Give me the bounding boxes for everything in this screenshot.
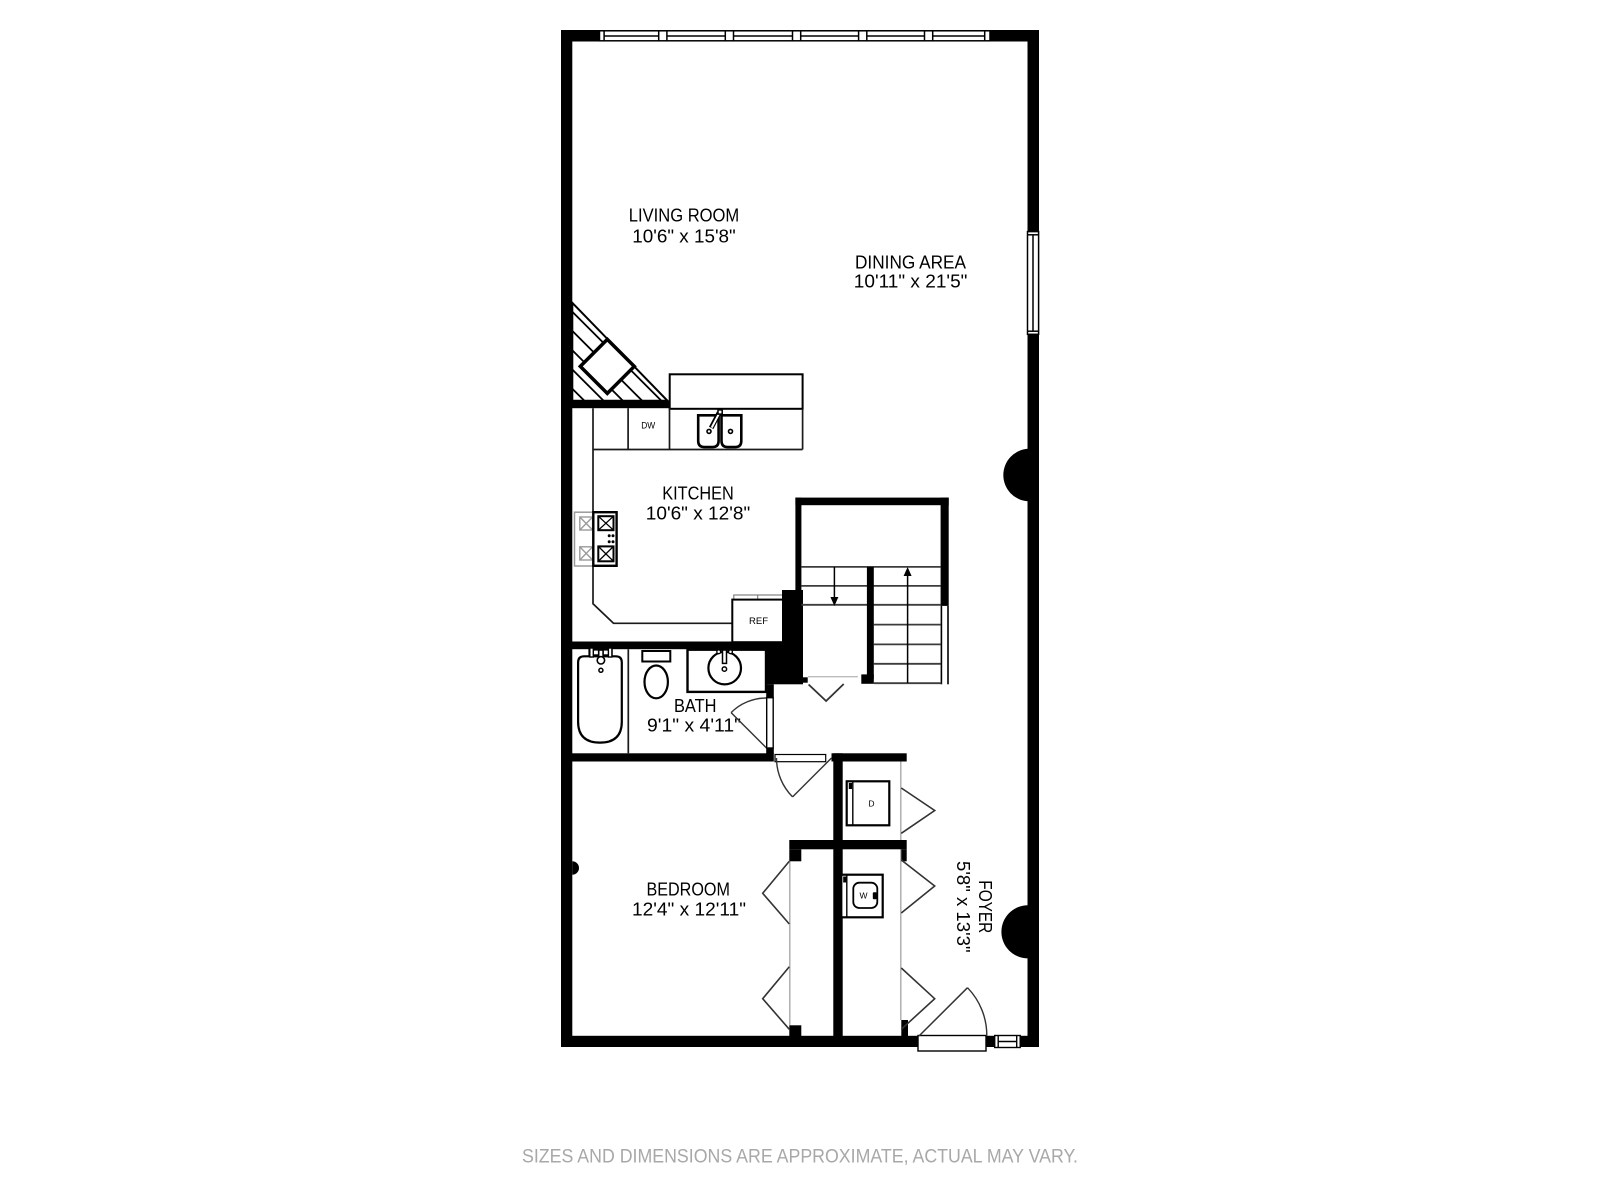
svg-text:SIZES AND DIMENSIONS ARE APPRO: SIZES AND DIMENSIONS ARE APPROXIMATE, AC… bbox=[522, 1147, 1078, 1168]
svg-text:12'4" x 12'11": 12'4" x 12'11" bbox=[632, 898, 746, 919]
svg-text:D: D bbox=[868, 798, 874, 808]
svg-text:10'11" x 21'5": 10'11" x 21'5" bbox=[854, 270, 968, 291]
svg-text:DW: DW bbox=[641, 421, 655, 432]
svg-text:10'6" x 15'8": 10'6" x 15'8" bbox=[632, 225, 736, 246]
svg-text:BATH: BATH bbox=[674, 695, 717, 716]
svg-text:KITCHEN: KITCHEN bbox=[662, 483, 734, 504]
svg-text:5'8" x 13'3": 5'8" x 13'3" bbox=[953, 861, 974, 953]
svg-text:BEDROOM: BEDROOM bbox=[646, 879, 730, 900]
svg-text:9'1" x 4'11": 9'1" x 4'11" bbox=[647, 715, 741, 736]
svg-text:W: W bbox=[859, 890, 867, 900]
svg-text:10'6" x 12'8": 10'6" x 12'8" bbox=[646, 503, 751, 524]
svg-text:FOYER: FOYER bbox=[975, 880, 996, 933]
svg-text:LIVING ROOM: LIVING ROOM bbox=[629, 205, 740, 226]
svg-text:REF: REF bbox=[749, 616, 768, 627]
